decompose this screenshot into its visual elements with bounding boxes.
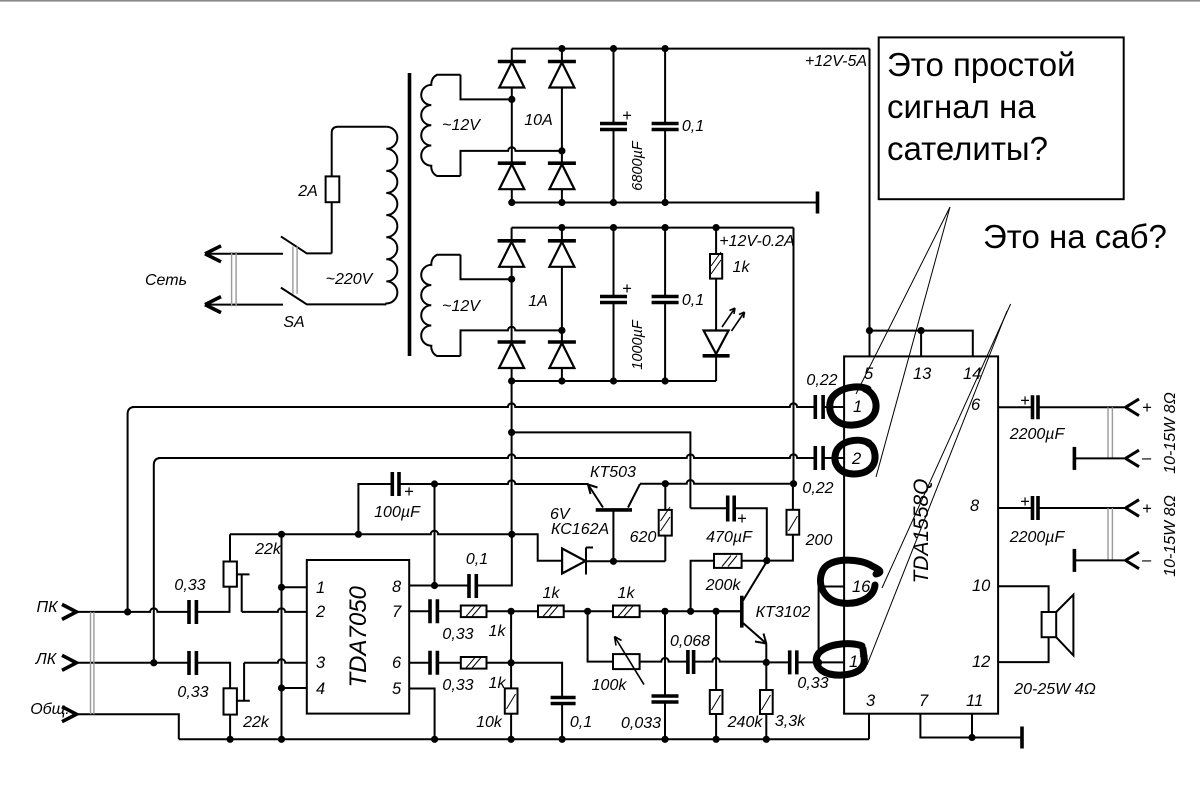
svg-text:Сеть: Сеть (145, 272, 187, 289)
svg-text:10k: 10k (476, 714, 503, 731)
svg-text:+: + (622, 280, 632, 298)
svg-text:7: 7 (919, 692, 929, 710)
svg-text:Это простой: Это простой (887, 46, 1076, 83)
svg-text:5: 5 (392, 680, 402, 698)
svg-text:22k: 22k (254, 541, 282, 558)
svg-text:4: 4 (316, 680, 325, 698)
svg-text:~12V: ~12V (442, 117, 481, 134)
svg-text:0,033: 0,033 (621, 715, 661, 732)
svg-text:20-25W 4Ω: 20-25W 4Ω (1013, 681, 1096, 698)
svg-text:~220V: ~220V (326, 271, 374, 288)
svg-text:0,33: 0,33 (442, 626, 473, 643)
svg-text:1: 1 (853, 398, 862, 416)
svg-text:0,1: 0,1 (682, 118, 704, 135)
svg-text:13: 13 (913, 365, 932, 383)
svg-text:11: 11 (966, 692, 983, 710)
svg-text:+: + (737, 510, 747, 528)
svg-text:~12V: ~12V (442, 298, 481, 315)
svg-text:TDA7050: TDA7050 (345, 585, 372, 687)
svg-text:3,3k: 3,3k (775, 713, 806, 730)
svg-text:3: 3 (866, 692, 876, 710)
svg-text:0,33: 0,33 (177, 684, 208, 701)
svg-text:2: 2 (315, 603, 325, 621)
svg-text:+12V-0.2A: +12V-0.2A (719, 233, 794, 250)
svg-text:8: 8 (970, 497, 980, 515)
svg-text:сателиты?: сателиты? (887, 130, 1048, 167)
svg-text:SA: SA (283, 314, 304, 331)
svg-text:2200µF: 2200µF (1009, 529, 1066, 546)
svg-text:+: + (1020, 392, 1030, 410)
svg-text:0,1: 0,1 (682, 292, 704, 309)
svg-text:ЛК: ЛК (35, 651, 58, 668)
svg-text:10A: 10A (524, 112, 552, 129)
svg-text:0,22: 0,22 (806, 372, 837, 389)
svg-text:10-15W 8Ω: 10-15W 8Ω (1162, 495, 1179, 577)
svg-text:3: 3 (316, 654, 326, 672)
svg-text:1A: 1A (528, 293, 548, 310)
svg-text:200: 200 (805, 532, 833, 549)
svg-text:+: + (404, 483, 414, 501)
svg-text:Это на саб?: Это на саб? (983, 218, 1167, 255)
svg-text:1k: 1k (489, 675, 507, 692)
svg-text:0,22: 0,22 (802, 480, 833, 497)
svg-text:12: 12 (972, 653, 990, 671)
svg-text:+: + (1142, 399, 1152, 417)
svg-text:1: 1 (316, 579, 325, 597)
svg-text:7: 7 (392, 603, 402, 621)
svg-text:100k: 100k (592, 677, 628, 694)
svg-text:0,1: 0,1 (466, 551, 488, 568)
svg-text:TDA1558Q: TDA1558Q (910, 478, 933, 583)
svg-text:+12V-5A: +12V-5A (805, 53, 867, 70)
svg-text:10: 10 (972, 577, 991, 595)
svg-text:0,068: 0,068 (670, 633, 710, 650)
svg-text:1k: 1k (733, 259, 751, 276)
svg-text:сигнал на: сигнал на (887, 88, 1036, 125)
svg-text:КС162А: КС162А (551, 521, 609, 538)
svg-text:КТ503: КТ503 (590, 464, 636, 481)
svg-text:6: 6 (392, 654, 402, 672)
svg-text:0,33: 0,33 (797, 675, 828, 692)
svg-text:10-15W 8Ω: 10-15W 8Ω (1162, 392, 1179, 474)
svg-text:–: – (1141, 551, 1152, 569)
svg-text:22k: 22k (242, 714, 270, 731)
svg-text:+: + (622, 107, 632, 125)
svg-text:2: 2 (851, 450, 861, 468)
svg-text:ПК: ПК (36, 599, 59, 616)
svg-text:КТ3102: КТ3102 (756, 604, 811, 621)
svg-text:1k: 1k (543, 585, 561, 602)
svg-text:2200µF: 2200µF (1009, 426, 1066, 443)
svg-text:+: + (1020, 493, 1030, 511)
svg-text:0,1: 0,1 (570, 714, 592, 731)
svg-text:1000µF: 1000µF (630, 319, 646, 370)
svg-text:0,33: 0,33 (174, 577, 205, 594)
svg-text:100µF: 100µF (374, 504, 421, 521)
svg-text:1k: 1k (618, 585, 636, 602)
svg-text:200k: 200k (705, 577, 742, 594)
svg-text:0,33: 0,33 (442, 677, 473, 694)
svg-text:+: + (1142, 500, 1152, 518)
svg-text:6800µF: 6800µF (630, 140, 646, 191)
svg-text:1k: 1k (489, 623, 507, 640)
svg-text:620: 620 (630, 529, 657, 546)
svg-text:8: 8 (392, 578, 402, 596)
svg-text:470µF: 470µF (706, 529, 753, 546)
svg-text:240k: 240k (727, 714, 764, 731)
svg-text:2A: 2A (297, 183, 318, 200)
svg-text:–: – (1141, 449, 1152, 467)
